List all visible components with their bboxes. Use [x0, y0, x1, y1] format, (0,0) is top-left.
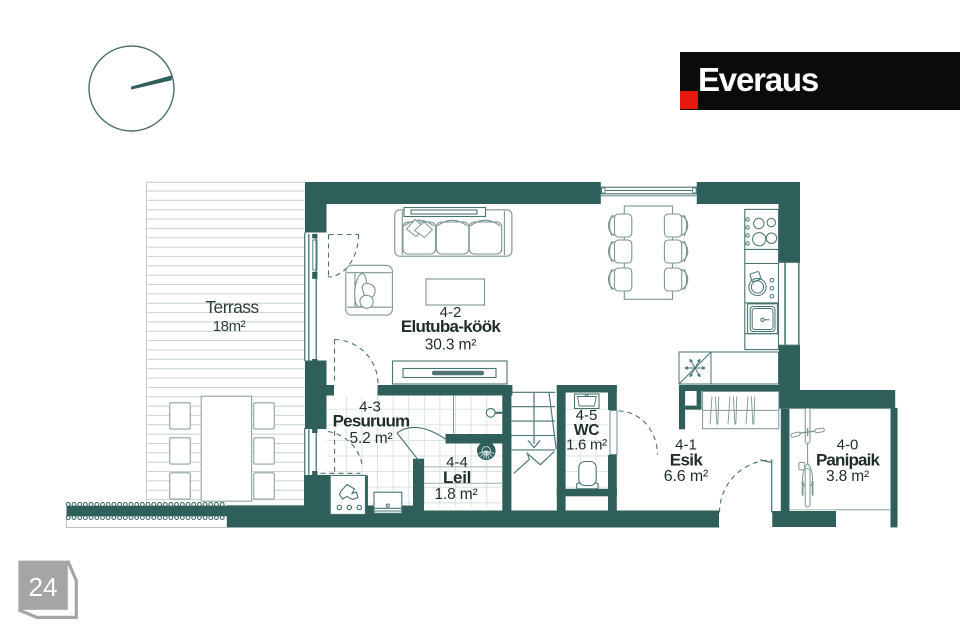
- svg-text:24: 24: [29, 572, 58, 602]
- svg-text:1.6 m²: 1.6 m²: [566, 437, 607, 454]
- svg-text:5.2 m²: 5.2 m²: [349, 430, 392, 447]
- svg-text:Elutuba-köök: Elutuba-köök: [401, 317, 502, 336]
- svg-text:Leil: Leil: [443, 468, 471, 487]
- svg-text:3.8 m²: 3.8 m²: [826, 468, 869, 485]
- svg-text:Pesuruum: Pesuruum: [333, 412, 410, 431]
- svg-text:6.6 m²: 6.6 m²: [664, 468, 709, 485]
- svg-text:18m²: 18m²: [213, 318, 246, 335]
- svg-text:Terrass: Terrass: [205, 297, 259, 317]
- svg-text:30.3 m²: 30.3 m²: [425, 337, 477, 354]
- svg-text:Everaus: Everaus: [698, 61, 818, 98]
- svg-text:1.8 m²: 1.8 m²: [434, 486, 477, 503]
- svg-text:Esik: Esik: [670, 451, 704, 470]
- svg-text:Panipaik: Panipaik: [816, 451, 881, 470]
